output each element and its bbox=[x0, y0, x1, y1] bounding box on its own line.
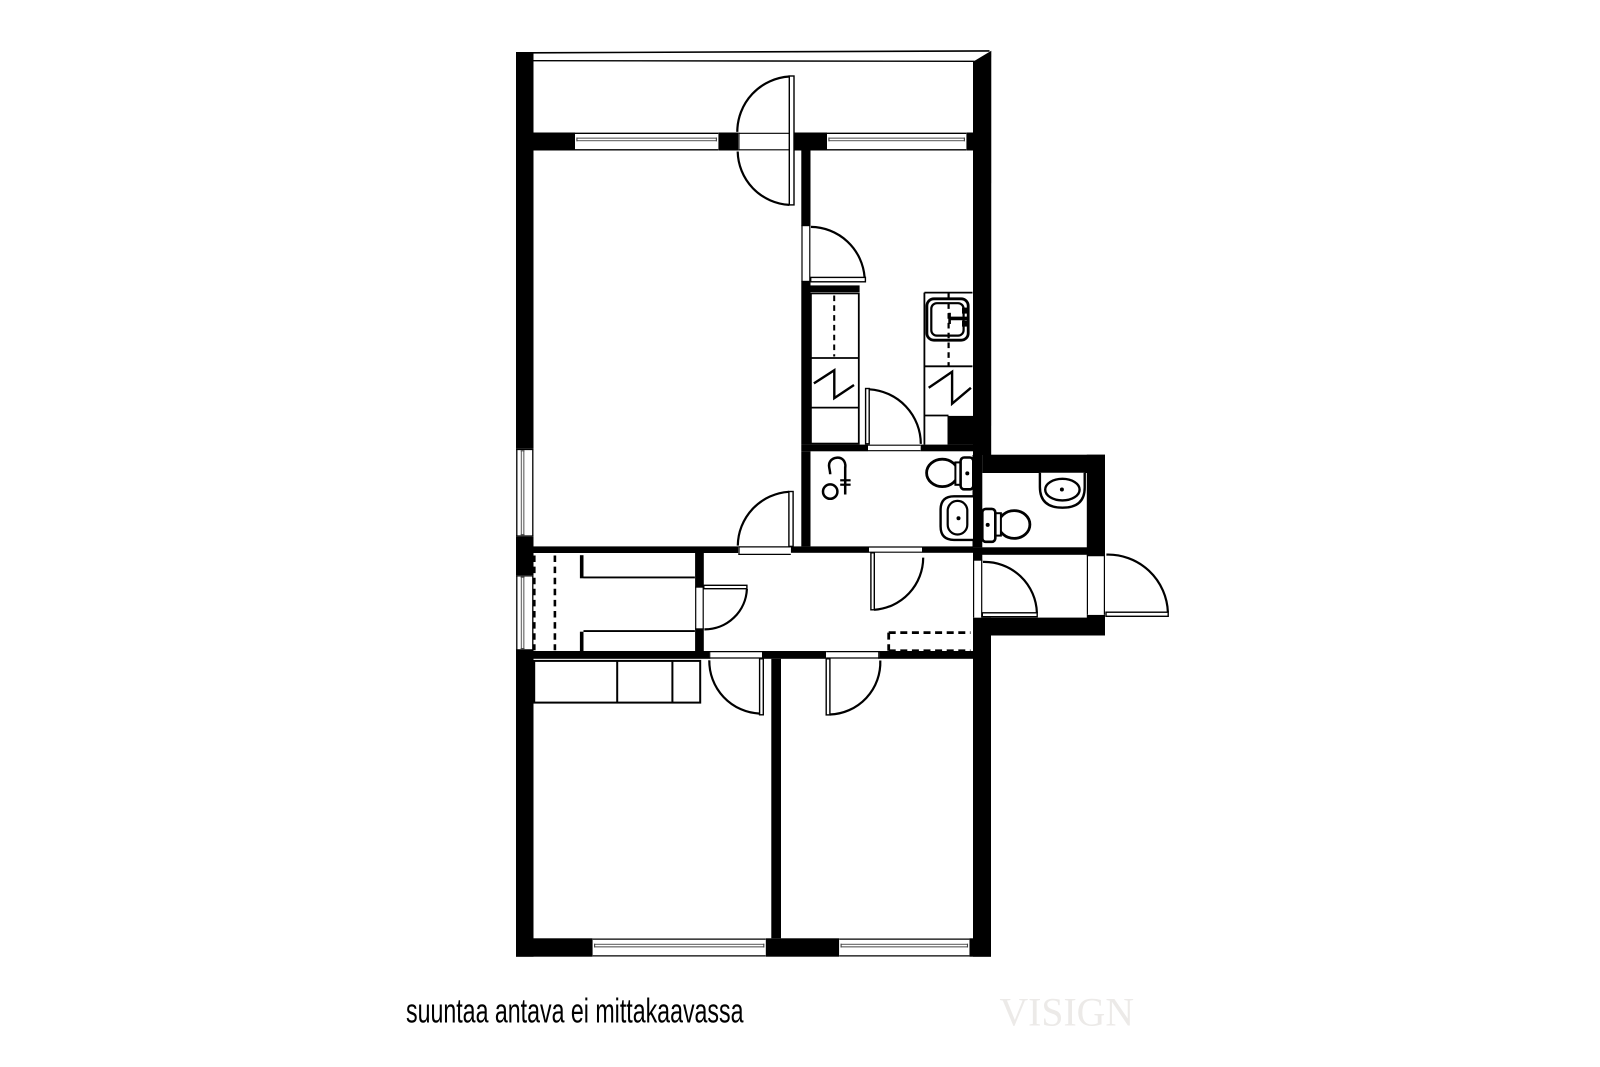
svg-text:VISIGN: VISIGN bbox=[1000, 990, 1135, 1035]
svg-text:suuntaa antava ei mittakaavass: suuntaa antava ei mittakaavassa bbox=[406, 993, 744, 1031]
